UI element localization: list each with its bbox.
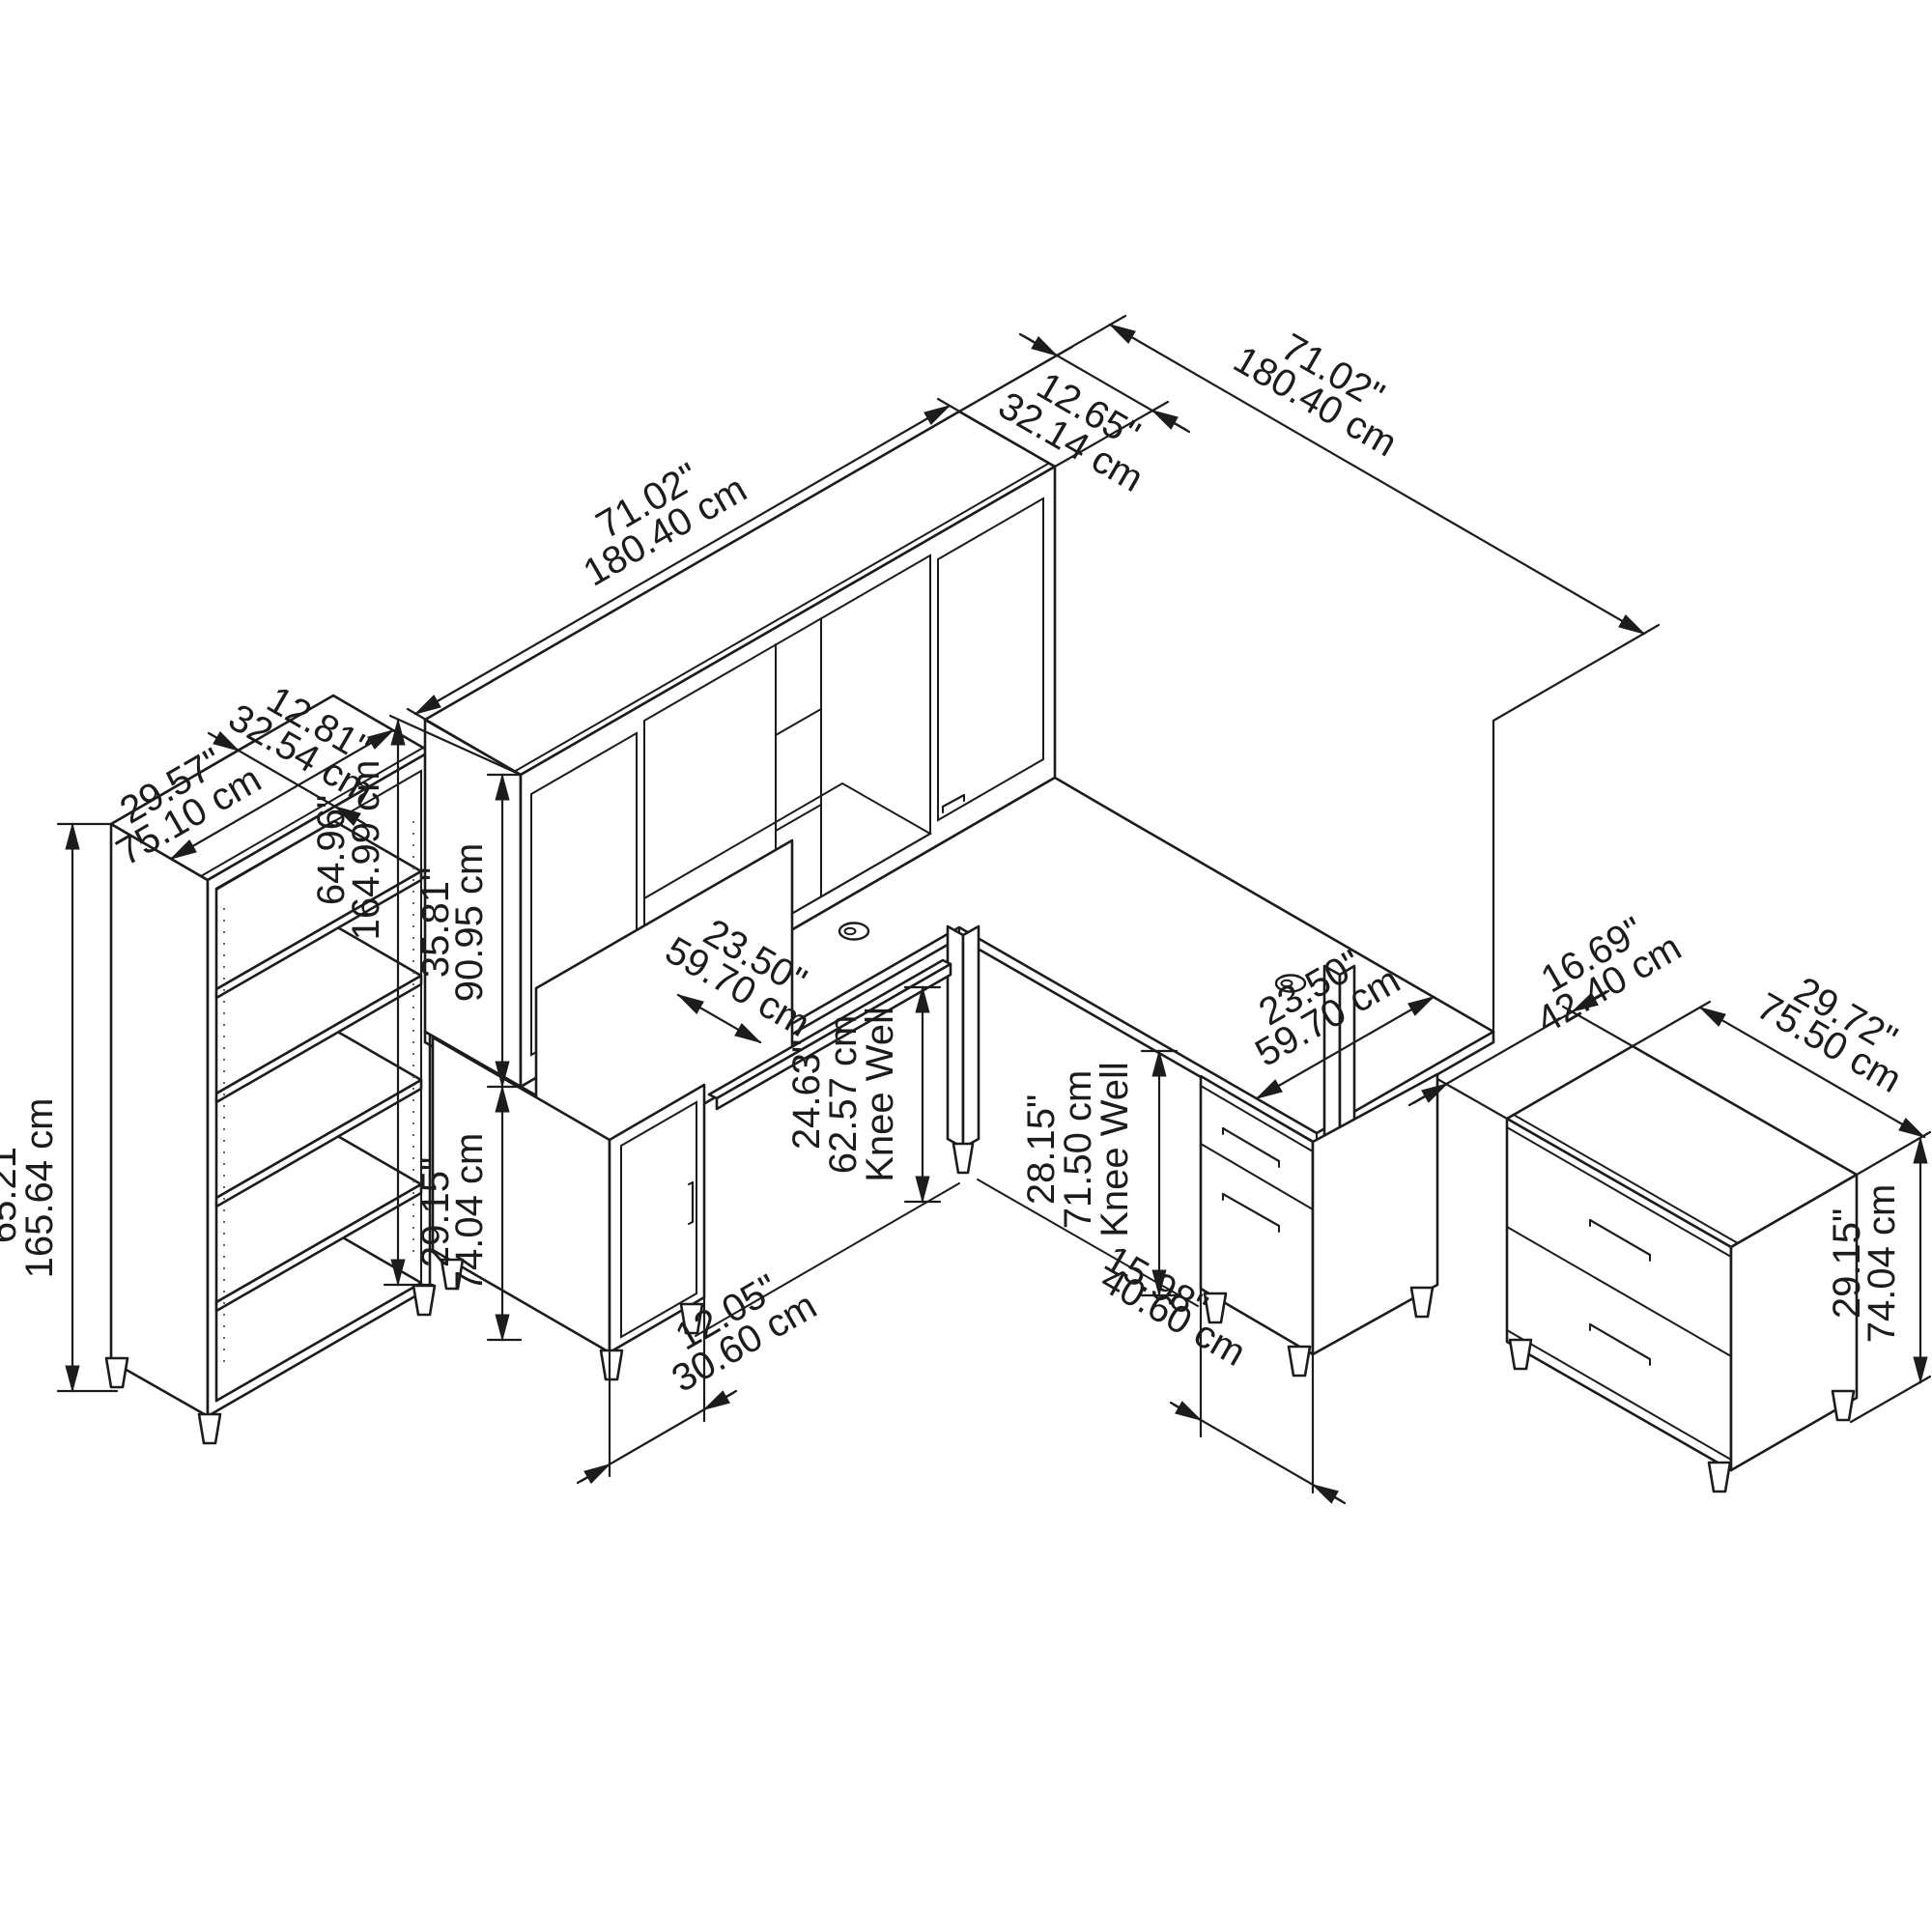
dim-kneewell-right-label: Knee Well [1094, 1062, 1136, 1237]
dim-hutch-height-cm: 90.95 cm [448, 843, 491, 1003]
dim-cabinet-height-cm: 74.04 cm [1861, 1184, 1903, 1344]
dim-kneewell-left-label: Knee Well [859, 1007, 901, 1182]
grommet-left [839, 923, 868, 940]
lateral-file-cabinet [1507, 1046, 1857, 1492]
dim-total-height-cm: 164.99 cm [345, 760, 387, 941]
dim-bookcase-height-cm: 165.64 cm [18, 1098, 61, 1279]
furniture-dimension-diagram: 71.02" 180.40 cm 12.65" 32.14 cm 71.02" … [0, 0, 1932, 1932]
dim-desk-height-cm: 74.04 cm [448, 1133, 491, 1293]
corner-leg [948, 926, 979, 1173]
bookcase-left-side [111, 824, 208, 1416]
diagram-canvas: 71.02" 180.40 cm 12.65" 32.14 cm 71.02" … [0, 0, 1932, 1932]
